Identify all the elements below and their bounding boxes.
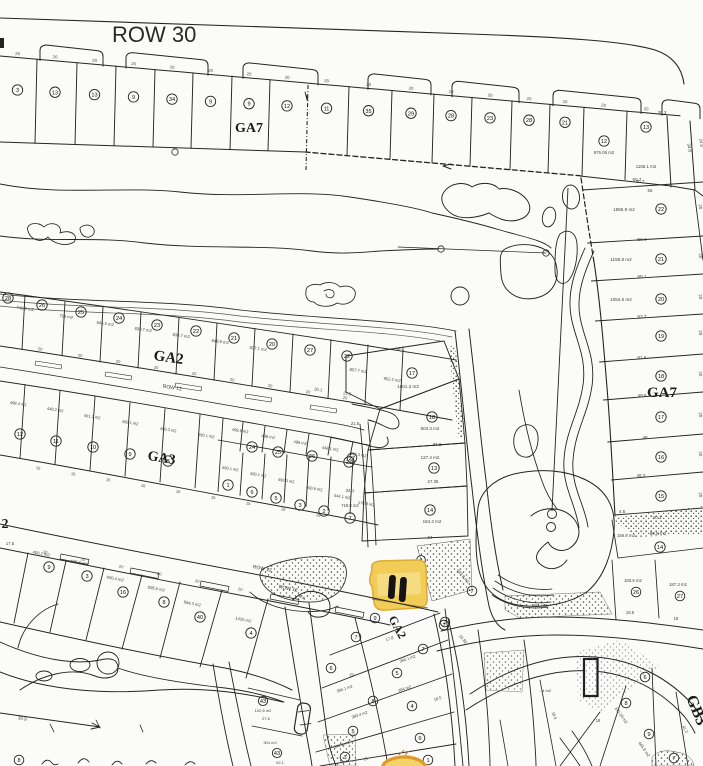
svg-text:20: 20 — [269, 342, 275, 348]
svg-text:16: 16 — [658, 455, 664, 461]
svg-text:9: 9 — [128, 452, 131, 458]
svg-text:12: 12 — [601, 139, 607, 145]
svg-text:12: 12 — [17, 432, 23, 438]
svg-text:27: 27 — [677, 594, 683, 600]
svg-text:2: 2 — [442, 623, 445, 629]
svg-text:46.3: 46.3 — [637, 473, 646, 478]
svg-text:504.3 m2: 504.3 m2 — [421, 426, 440, 431]
svg-text:...4 m2: ...4 m2 — [539, 688, 552, 693]
svg-text:2: 2 — [322, 509, 325, 515]
svg-text:GA7: GA7 — [647, 385, 678, 401]
svg-text:24: 24 — [116, 316, 122, 322]
svg-text:14: 14 — [427, 508, 433, 514]
svg-text:17: 17 — [658, 415, 664, 421]
svg-text:3: 3 — [16, 88, 19, 94]
svg-text:30.3: 30.3 — [658, 110, 667, 115]
svg-text:7: 7 — [470, 589, 473, 595]
svg-text:51.6: 51.6 — [638, 355, 647, 360]
svg-text:304 m2: 304 m2 — [263, 740, 277, 745]
svg-text:21: 21 — [658, 257, 664, 263]
svg-text:18: 18 — [596, 718, 601, 723]
svg-text:19.5: 19.5 — [626, 610, 635, 615]
svg-text:11: 11 — [53, 439, 59, 445]
svg-text:187.3 m2: 187.3 m2 — [669, 582, 688, 587]
svg-text:13: 13 — [643, 125, 649, 131]
svg-text:49.8: 49.8 — [638, 393, 647, 398]
svg-text:24.1: 24.1 — [346, 488, 355, 493]
svg-text:1001.3 m2: 1001.3 m2 — [397, 384, 419, 389]
svg-text:183.5 m2: 183.5 m2 — [624, 578, 643, 583]
svg-text:26: 26 — [309, 454, 315, 460]
svg-text:27: 27 — [307, 348, 313, 354]
svg-text:20: 20 — [658, 297, 664, 303]
svg-text:13: 13 — [431, 466, 437, 472]
svg-text:17: 17 — [409, 371, 415, 377]
svg-text:976.05 m2: 976.05 m2 — [594, 150, 615, 155]
svg-text:102.6 m2: 102.6 m2 — [255, 708, 272, 713]
svg-text:22: 22 — [344, 354, 350, 360]
svg-text:718.8 m2: 718.8 m2 — [341, 503, 359, 508]
svg-text:1855.9 m2: 1855.9 m2 — [613, 207, 635, 212]
svg-text:14: 14 — [657, 545, 663, 551]
svg-text:1155.1 m2: 1155.1 m2 — [636, 164, 657, 169]
svg-text:96.8 m2: 96.8 m2 — [650, 531, 667, 536]
svg-text:127.4 m2: 127.4 m2 — [421, 455, 440, 460]
svg-text:28: 28 — [526, 118, 532, 124]
svg-text:1: 1 — [426, 758, 429, 764]
svg-text:GA7: GA7 — [235, 121, 263, 136]
svg-text:6: 6 — [418, 736, 421, 742]
svg-text:21.5: 21.5 — [351, 421, 360, 426]
svg-text:13: 13 — [52, 90, 58, 96]
svg-text:8: 8 — [371, 699, 374, 705]
svg-text:18: 18 — [658, 374, 664, 380]
svg-text:55.1: 55.1 — [638, 274, 647, 279]
svg-text:26: 26 — [39, 303, 45, 309]
svg-text:22: 22 — [193, 329, 199, 335]
svg-text:24: 24 — [428, 535, 433, 540]
svg-text:43: 43 — [274, 751, 280, 757]
svg-text:4: 4 — [249, 631, 252, 637]
svg-text:9: 9 — [247, 102, 250, 108]
svg-text:ROW 30: ROW 30 — [112, 22, 196, 47]
svg-text:6: 6 — [250, 490, 253, 496]
svg-text:10: 10 — [90, 445, 96, 451]
svg-text:22: 22 — [658, 207, 664, 213]
svg-text:9: 9 — [209, 99, 212, 105]
svg-text:27.6: 27.6 — [262, 716, 271, 721]
svg-text:5: 5 — [395, 671, 398, 677]
svg-text:53.7: 53.7 — [638, 314, 647, 319]
svg-text:26: 26 — [633, 590, 639, 596]
svg-text:8: 8 — [624, 701, 627, 707]
svg-text:21: 21 — [231, 336, 237, 342]
svg-text:48: 48 — [642, 435, 648, 440]
svg-text:25: 25 — [275, 450, 281, 456]
svg-text:50.7: 50.7 — [633, 177, 642, 182]
svg-text:27: 27 — [349, 456, 355, 462]
svg-text:52.1: 52.1 — [276, 760, 285, 765]
svg-text:55: 55 — [648, 188, 653, 193]
svg-text:156.8 m2: 156.8 m2 — [617, 533, 636, 538]
svg-text:15: 15 — [658, 494, 664, 500]
svg-text:8: 8 — [17, 758, 20, 764]
svg-text:184.2 m2: 184.2 m2 — [423, 519, 442, 524]
svg-text:29: 29 — [408, 111, 414, 117]
svg-text:56.4: 56.4 — [638, 237, 647, 242]
svg-text:17.5: 17.5 — [6, 541, 15, 546]
svg-text:7: 7 — [421, 647, 424, 653]
svg-text:6: 6 — [643, 675, 646, 681]
svg-text:4: 4 — [410, 704, 413, 710]
svg-text:12: 12 — [284, 104, 290, 110]
svg-text:9: 9 — [647, 732, 650, 738]
svg-text:18: 18 — [674, 616, 679, 621]
svg-text:43: 43 — [260, 699, 266, 705]
svg-text:35: 35 — [365, 109, 371, 115]
svg-text:7: 7 — [348, 516, 351, 522]
svg-text:6: 6 — [329, 666, 332, 672]
svg-text:40: 40 — [197, 615, 203, 621]
svg-text:4.5: 4.5 — [619, 509, 626, 514]
svg-text:16: 16 — [120, 590, 126, 596]
svg-text:9: 9 — [47, 565, 50, 571]
svg-text:7: 7 — [354, 635, 357, 641]
svg-text:23: 23 — [487, 116, 493, 122]
svg-text:21: 21 — [562, 120, 568, 126]
svg-text:28: 28 — [5, 296, 11, 302]
svg-text:5: 5 — [274, 496, 277, 502]
svg-text:1054.6 m2: 1054.6 m2 — [610, 297, 632, 302]
svg-text:11: 11 — [324, 106, 330, 112]
svg-text:18: 18 — [429, 415, 435, 421]
svg-text:8: 8 — [162, 600, 165, 606]
svg-text:27.35: 27.35 — [428, 479, 440, 484]
svg-text:28: 28 — [448, 114, 454, 120]
svg-text:3: 3 — [85, 574, 88, 580]
svg-text:24: 24 — [249, 445, 255, 451]
svg-text:1158.8 m2: 1158.8 m2 — [610, 257, 632, 262]
svg-text:9: 9 — [373, 616, 376, 622]
svg-text:1: 1 — [226, 483, 229, 489]
svg-text:34: 34 — [169, 97, 175, 103]
svg-text:9: 9 — [132, 95, 135, 101]
svg-text:19: 19 — [658, 334, 664, 340]
svg-text:23: 23 — [154, 323, 160, 329]
svg-text:13: 13 — [91, 93, 97, 99]
svg-text:3: 3 — [298, 503, 301, 509]
svg-text:25: 25 — [78, 310, 84, 316]
